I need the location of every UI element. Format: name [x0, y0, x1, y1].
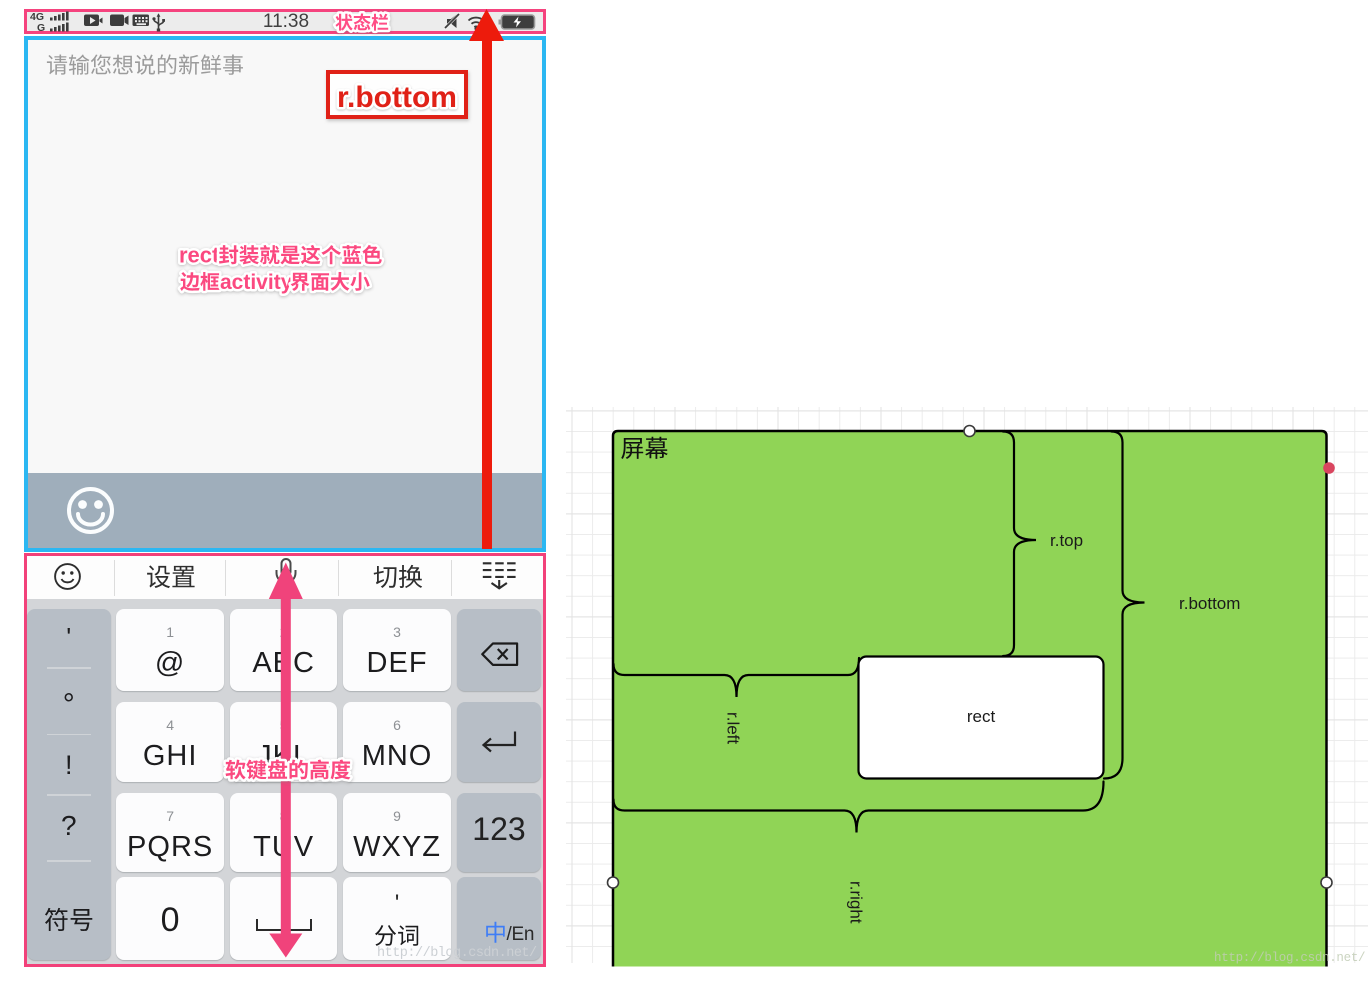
svg-text:r.left: r.left [724, 712, 743, 744]
svg-text:r.bottom: r.bottom [337, 81, 457, 114]
svg-text:r.bottom: r.bottom [1179, 594, 1240, 613]
svg-text:rect: rect [967, 707, 996, 726]
svg-text:http://blog.csdn.net/: http://blog.csdn.net/ [1214, 951, 1365, 965]
svg-text:activity: activity [220, 271, 293, 294]
svg-text:rect: rect [179, 243, 220, 268]
svg-text:r.top: r.top [1050, 531, 1083, 550]
svg-text:r.right: r.right [847, 881, 866, 924]
